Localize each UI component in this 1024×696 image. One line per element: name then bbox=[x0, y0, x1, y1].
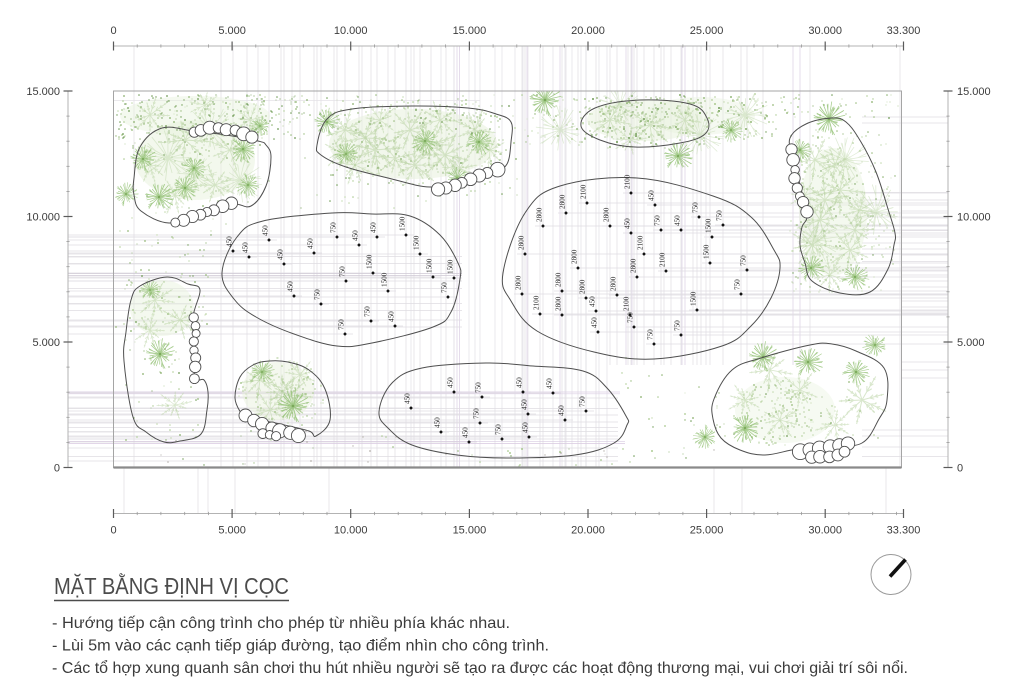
svg-text:750: 750 bbox=[579, 396, 587, 407]
svg-text:750: 750 bbox=[740, 255, 748, 266]
svg-text:- Lùi 5m vào các cạnh tiếp giá: - Lùi 5m vào các cạnh tiếp giáp đường, t… bbox=[52, 637, 549, 655]
svg-text:15.000: 15.000 bbox=[453, 525, 487, 537]
svg-text:15.000: 15.000 bbox=[453, 25, 487, 37]
svg-text:1500: 1500 bbox=[703, 244, 711, 259]
svg-text:10.000: 10.000 bbox=[957, 212, 991, 224]
svg-text:450: 450 bbox=[287, 281, 295, 292]
svg-text:2800: 2800 bbox=[559, 194, 567, 209]
svg-text:450: 450 bbox=[516, 377, 524, 388]
svg-text:0: 0 bbox=[110, 525, 116, 537]
svg-text:2800: 2800 bbox=[555, 296, 563, 311]
svg-text:1500: 1500 bbox=[690, 291, 698, 306]
svg-text:450: 450 bbox=[388, 311, 396, 322]
svg-text:450: 450 bbox=[352, 230, 360, 241]
svg-text:1500: 1500 bbox=[399, 216, 407, 231]
svg-text:750: 750 bbox=[627, 312, 635, 323]
svg-text:1500: 1500 bbox=[705, 218, 713, 233]
svg-text:750: 750 bbox=[338, 319, 346, 330]
svg-text:450: 450 bbox=[462, 427, 470, 438]
svg-text:2100: 2100 bbox=[580, 184, 588, 199]
svg-text:10.000: 10.000 bbox=[334, 525, 368, 537]
svg-text:450: 450 bbox=[624, 218, 632, 229]
svg-text:5.000: 5.000 bbox=[218, 25, 246, 37]
svg-text:2800: 2800 bbox=[630, 258, 638, 273]
svg-text:2100: 2100 bbox=[623, 296, 631, 311]
svg-text:2800: 2800 bbox=[518, 235, 526, 250]
svg-text:25.000: 25.000 bbox=[690, 25, 724, 37]
svg-text:450: 450 bbox=[589, 296, 597, 307]
svg-text:450: 450 bbox=[370, 222, 378, 233]
svg-text:2800: 2800 bbox=[536, 207, 544, 222]
svg-text:750: 750 bbox=[674, 320, 682, 331]
svg-text:450: 450 bbox=[521, 399, 529, 410]
svg-text:450: 450 bbox=[434, 417, 442, 428]
svg-text:2800: 2800 bbox=[610, 276, 618, 291]
svg-text:2800: 2800 bbox=[515, 275, 523, 290]
svg-text:2800: 2800 bbox=[555, 272, 563, 287]
svg-text:750: 750 bbox=[716, 210, 724, 221]
svg-text:30.000: 30.000 bbox=[808, 25, 842, 37]
svg-text:2100: 2100 bbox=[624, 174, 632, 189]
svg-text:750: 750 bbox=[364, 306, 372, 317]
svg-text:10.000: 10.000 bbox=[334, 25, 368, 37]
svg-text:0: 0 bbox=[54, 463, 60, 475]
svg-text:1500: 1500 bbox=[426, 258, 434, 273]
svg-text:2100: 2100 bbox=[637, 235, 645, 250]
svg-text:450: 450 bbox=[447, 377, 455, 388]
svg-text:450: 450 bbox=[674, 215, 682, 226]
svg-text:750: 750 bbox=[339, 266, 347, 277]
svg-text:450: 450 bbox=[242, 242, 250, 253]
svg-text:750: 750 bbox=[654, 215, 662, 226]
svg-text:25.000: 25.000 bbox=[690, 525, 724, 537]
svg-text:33.300: 33.300 bbox=[887, 25, 921, 37]
svg-text:450: 450 bbox=[648, 190, 656, 201]
svg-text:30.000: 30.000 bbox=[808, 525, 842, 537]
svg-text:450: 450 bbox=[591, 317, 599, 328]
svg-text:750: 750 bbox=[330, 222, 338, 233]
svg-text:750: 750 bbox=[473, 408, 481, 419]
svg-text:1500: 1500 bbox=[447, 259, 455, 274]
svg-text:5.000: 5.000 bbox=[218, 525, 246, 537]
svg-text:20.000: 20.000 bbox=[571, 25, 605, 37]
svg-text:750: 750 bbox=[734, 279, 742, 290]
svg-text:450: 450 bbox=[307, 238, 315, 249]
svg-text:- Các tổ hợp xung quanh sân ch: - Các tổ hợp xung quanh sân chơi thu hút… bbox=[52, 659, 908, 677]
svg-text:MẶT BẰNG ĐỊNH VỊ CỌC: MẶT BẰNG ĐỊNH VỊ CỌC bbox=[54, 572, 289, 599]
svg-text:15.000: 15.000 bbox=[26, 86, 60, 98]
svg-text:750: 750 bbox=[475, 382, 483, 393]
svg-text:450: 450 bbox=[546, 378, 554, 389]
svg-text:2800: 2800 bbox=[579, 279, 587, 294]
svg-text:450: 450 bbox=[522, 422, 530, 433]
svg-text:1500: 1500 bbox=[413, 235, 421, 250]
svg-text:450: 450 bbox=[226, 236, 234, 247]
svg-text:750: 750 bbox=[314, 289, 322, 300]
svg-text:33.300: 33.300 bbox=[887, 525, 921, 537]
svg-text:750: 750 bbox=[647, 329, 655, 340]
svg-text:5.000: 5.000 bbox=[957, 337, 985, 349]
svg-text:0: 0 bbox=[110, 25, 116, 37]
svg-text:1500: 1500 bbox=[381, 272, 389, 287]
svg-text:750: 750 bbox=[692, 202, 700, 213]
svg-text:450: 450 bbox=[277, 249, 285, 260]
svg-text:5.000: 5.000 bbox=[32, 337, 60, 349]
svg-text:15.000: 15.000 bbox=[957, 86, 991, 98]
svg-text:0: 0 bbox=[957, 463, 963, 475]
svg-text:- Hướng tiếp cận công trình ch: - Hướng tiếp cận công trình cho phép từ … bbox=[52, 615, 510, 632]
svg-text:450: 450 bbox=[262, 225, 270, 236]
svg-text:750: 750 bbox=[441, 282, 449, 293]
svg-text:2100: 2100 bbox=[533, 295, 541, 310]
svg-text:2800: 2800 bbox=[603, 207, 611, 222]
svg-text:1500: 1500 bbox=[366, 254, 374, 269]
svg-text:20.000: 20.000 bbox=[571, 525, 605, 537]
svg-text:2800: 2800 bbox=[571, 249, 579, 264]
svg-text:450: 450 bbox=[404, 393, 412, 404]
svg-text:750: 750 bbox=[495, 424, 503, 435]
svg-text:450: 450 bbox=[558, 405, 566, 416]
svg-text:10.000: 10.000 bbox=[26, 212, 60, 224]
svg-text:2100: 2100 bbox=[659, 252, 667, 267]
